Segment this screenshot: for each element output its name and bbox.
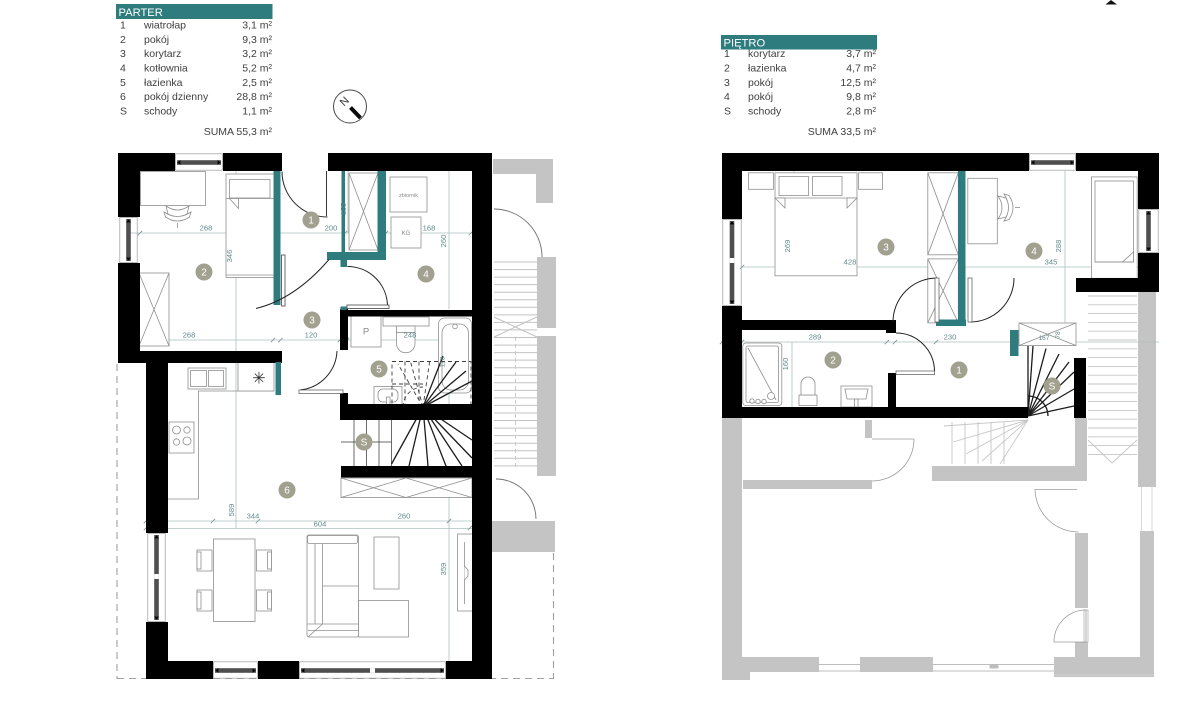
- svg-text:5,2 m²: 5,2 m²: [242, 63, 272, 75]
- svg-text:3: 3: [309, 316, 315, 327]
- svg-text:3: 3: [724, 77, 730, 89]
- svg-text:110: 110: [440, 356, 447, 367]
- svg-text:167: 167: [1039, 335, 1050, 342]
- svg-text:230: 230: [944, 333, 957, 342]
- svg-text:S: S: [120, 105, 127, 117]
- svg-text:248: 248: [404, 331, 417, 340]
- svg-text:4,7 m²: 4,7 m²: [846, 63, 876, 75]
- svg-text:12,5 m²: 12,5 m²: [840, 77, 876, 89]
- svg-text:200: 200: [325, 224, 338, 233]
- svg-text:6: 6: [284, 486, 290, 497]
- svg-text:1: 1: [120, 20, 126, 32]
- svg-text:kotłownia: kotłownia: [144, 63, 188, 75]
- svg-text:268: 268: [183, 331, 196, 340]
- svg-text:2: 2: [724, 63, 730, 75]
- svg-text:2,8 m²: 2,8 m²: [846, 105, 876, 117]
- svg-text:S: S: [361, 438, 368, 449]
- svg-text:260: 260: [439, 235, 448, 248]
- svg-text:wiatrołap: wiatrołap: [143, 20, 186, 32]
- svg-text:SUMA 55,3 m²: SUMA 55,3 m²: [204, 126, 273, 138]
- svg-text:3: 3: [883, 243, 889, 254]
- svg-text:4: 4: [724, 91, 730, 103]
- svg-text:160: 160: [781, 358, 790, 371]
- svg-text:345: 345: [1045, 258, 1058, 267]
- svg-text:9,8 m²: 9,8 m²: [846, 91, 876, 103]
- svg-text:3: 3: [120, 48, 126, 60]
- svg-text:3,1 m²: 3,1 m²: [242, 20, 272, 32]
- svg-text:3,2 m²: 3,2 m²: [242, 48, 272, 60]
- svg-text:288: 288: [1054, 240, 1063, 253]
- svg-text:78: 78: [1055, 331, 1062, 339]
- svg-text:korytarz: korytarz: [748, 48, 785, 60]
- svg-text:2: 2: [830, 356, 836, 367]
- svg-text:4: 4: [1031, 247, 1037, 258]
- svg-text:1: 1: [724, 48, 730, 60]
- svg-text:KG: KG: [402, 231, 411, 237]
- svg-text:2: 2: [120, 34, 126, 46]
- svg-text:359: 359: [439, 563, 448, 576]
- svg-text:zbiornik: zbiornik: [399, 193, 418, 199]
- svg-text:✳: ✳: [252, 371, 265, 388]
- svg-text:2,5 m²: 2,5 m²: [242, 77, 272, 89]
- svg-text:schody: schody: [748, 105, 782, 117]
- svg-text:łazienka: łazienka: [748, 63, 787, 75]
- svg-text:korytarz: korytarz: [144, 48, 181, 60]
- svg-text:łazienka: łazienka: [144, 77, 183, 89]
- svg-text:SUMA 33,5 m²: SUMA 33,5 m²: [808, 126, 877, 138]
- svg-text:6: 6: [120, 91, 126, 103]
- svg-text:344: 344: [247, 512, 260, 521]
- svg-text:604: 604: [314, 520, 327, 529]
- svg-text:1,1 m²: 1,1 m²: [242, 105, 272, 117]
- svg-text:155: 155: [339, 203, 348, 216]
- svg-text:pokój: pokój: [144, 34, 169, 46]
- svg-text:9,3 m²: 9,3 m²: [242, 34, 272, 46]
- svg-text:346: 346: [225, 250, 234, 263]
- svg-text:pokój: pokój: [748, 91, 773, 103]
- svg-text:28,8 m²: 28,8 m²: [236, 91, 272, 103]
- svg-text:269: 269: [783, 240, 792, 253]
- svg-text:268: 268: [200, 224, 213, 233]
- svg-text:schody: schody: [144, 105, 178, 117]
- svg-text:S: S: [1049, 382, 1056, 393]
- svg-text:1: 1: [956, 366, 962, 377]
- svg-text:260: 260: [398, 512, 411, 521]
- svg-text:S: S: [724, 105, 731, 117]
- svg-text:589: 589: [227, 504, 236, 517]
- svg-text:3,7 m²: 3,7 m²: [846, 48, 876, 60]
- svg-text:PARTER: PARTER: [119, 7, 163, 19]
- svg-text:5: 5: [120, 77, 126, 89]
- svg-text:4: 4: [120, 63, 126, 75]
- svg-text:428: 428: [844, 258, 857, 267]
- svg-text:pokój dzienny: pokój dzienny: [144, 91, 209, 103]
- svg-text:4: 4: [423, 270, 429, 281]
- svg-text:2: 2: [201, 268, 207, 279]
- svg-text:P: P: [363, 327, 369, 338]
- svg-text:120: 120: [305, 331, 318, 340]
- svg-text:5: 5: [376, 365, 382, 376]
- svg-text:168: 168: [423, 224, 436, 233]
- svg-text:289: 289: [809, 333, 822, 342]
- svg-text:pokój: pokój: [748, 77, 773, 89]
- svg-text:1: 1: [308, 216, 314, 227]
